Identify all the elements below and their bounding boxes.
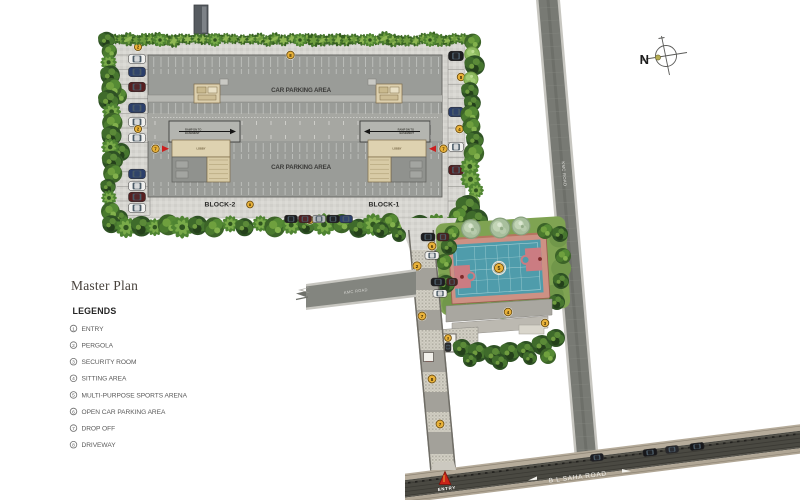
svg-text:2: 2 <box>416 264 419 270</box>
svg-text:RAMP DN TO: RAMP DN TO <box>185 127 201 131</box>
svg-text:LOBBY: LOBBY <box>392 147 401 151</box>
svg-text:7: 7 <box>421 314 424 319</box>
svg-text:BLOCK-2: BLOCK-2 <box>205 202 236 209</box>
svg-text:OPEN CAR PARKING AREA: OPEN CAR PARKING AREA <box>82 409 166 416</box>
svg-text:SITTING AREA: SITTING AREA <box>82 376 127 383</box>
svg-text:DROP OFF: DROP OFF <box>82 426 116 433</box>
svg-text:3: 3 <box>72 360 75 366</box>
svg-text:2: 2 <box>72 343 75 349</box>
svg-text:6: 6 <box>72 409 75 415</box>
svg-text:RAMP DN TO: RAMP DN TO <box>398 127 414 131</box>
svg-text:6: 6 <box>431 244 434 249</box>
svg-text:SECURITY ROOM: SECURITY ROOM <box>82 359 137 366</box>
svg-text:BASEMENT: BASEMENT <box>185 131 200 135</box>
svg-text:BLOCK-1: BLOCK-1 <box>369 202 400 209</box>
svg-text:8: 8 <box>431 377 434 382</box>
svg-text:N: N <box>640 52 649 67</box>
svg-text:8: 8 <box>72 443 75 449</box>
svg-text:4: 4 <box>72 376 75 382</box>
svg-text:BASEMENT: BASEMENT <box>399 131 414 135</box>
svg-text:1: 1 <box>72 326 75 332</box>
svg-text:PERGOLA: PERGOLA <box>82 343 114 350</box>
svg-text:Master Plan: Master Plan <box>71 278 138 293</box>
svg-text:7: 7 <box>72 426 75 432</box>
svg-text:CAR PARKING AREA: CAR PARKING AREA <box>271 164 331 171</box>
svg-text:LEGENDS: LEGENDS <box>73 306 117 316</box>
svg-text:7: 7 <box>439 422 442 427</box>
svg-text:5: 5 <box>72 393 75 399</box>
svg-text:LOBBY: LOBBY <box>196 147 205 151</box>
svg-text:ENTRY: ENTRY <box>82 326 105 333</box>
svg-text:CAR PARKING AREA: CAR PARKING AREA <box>271 87 331 94</box>
svg-text:5: 5 <box>498 266 501 272</box>
svg-text:DRIVEWAY: DRIVEWAY <box>82 442 117 449</box>
svg-text:MULTI-PURPOSE SPORTS ARENA: MULTI-PURPOSE SPORTS ARENA <box>82 392 188 399</box>
